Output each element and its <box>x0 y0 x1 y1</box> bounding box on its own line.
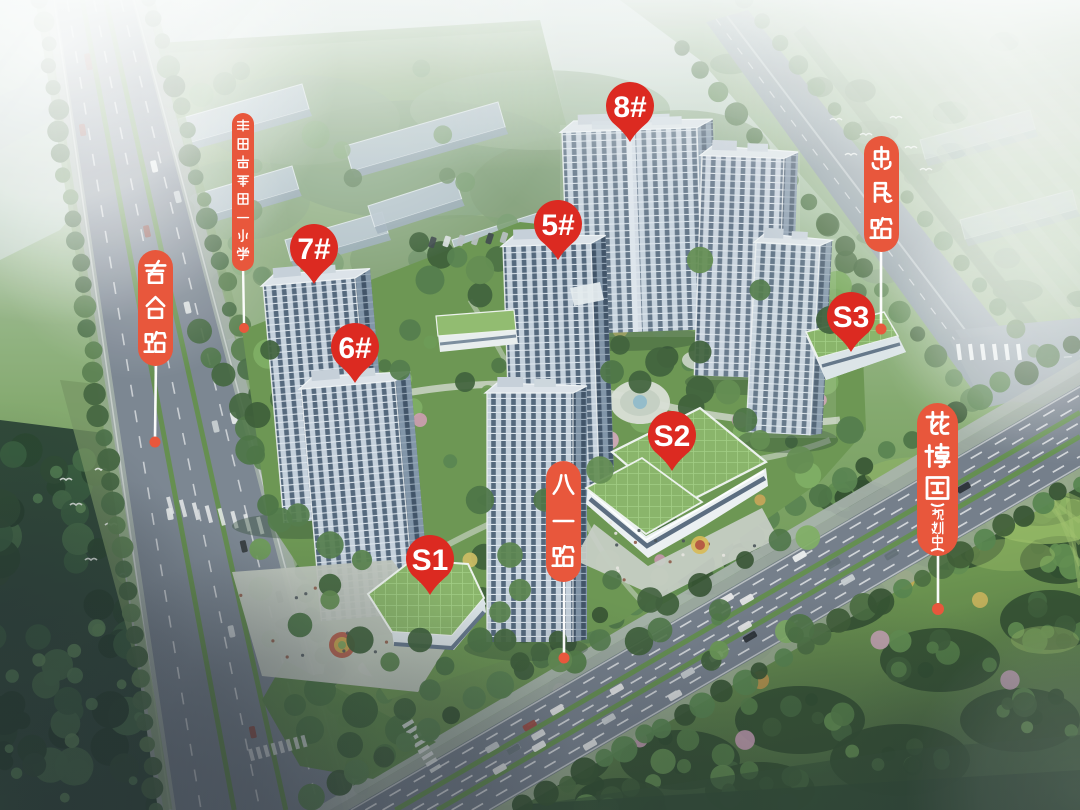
svg-text:8#: 8# <box>613 91 647 124</box>
svg-text:S3: S3 <box>833 301 870 334</box>
svg-text:6#: 6# <box>338 332 372 365</box>
svg-text:S1: S1 <box>412 544 449 577</box>
svg-text:S2: S2 <box>654 420 691 453</box>
svg-text:5#: 5# <box>541 209 575 242</box>
svg-text:7#: 7# <box>297 233 331 266</box>
